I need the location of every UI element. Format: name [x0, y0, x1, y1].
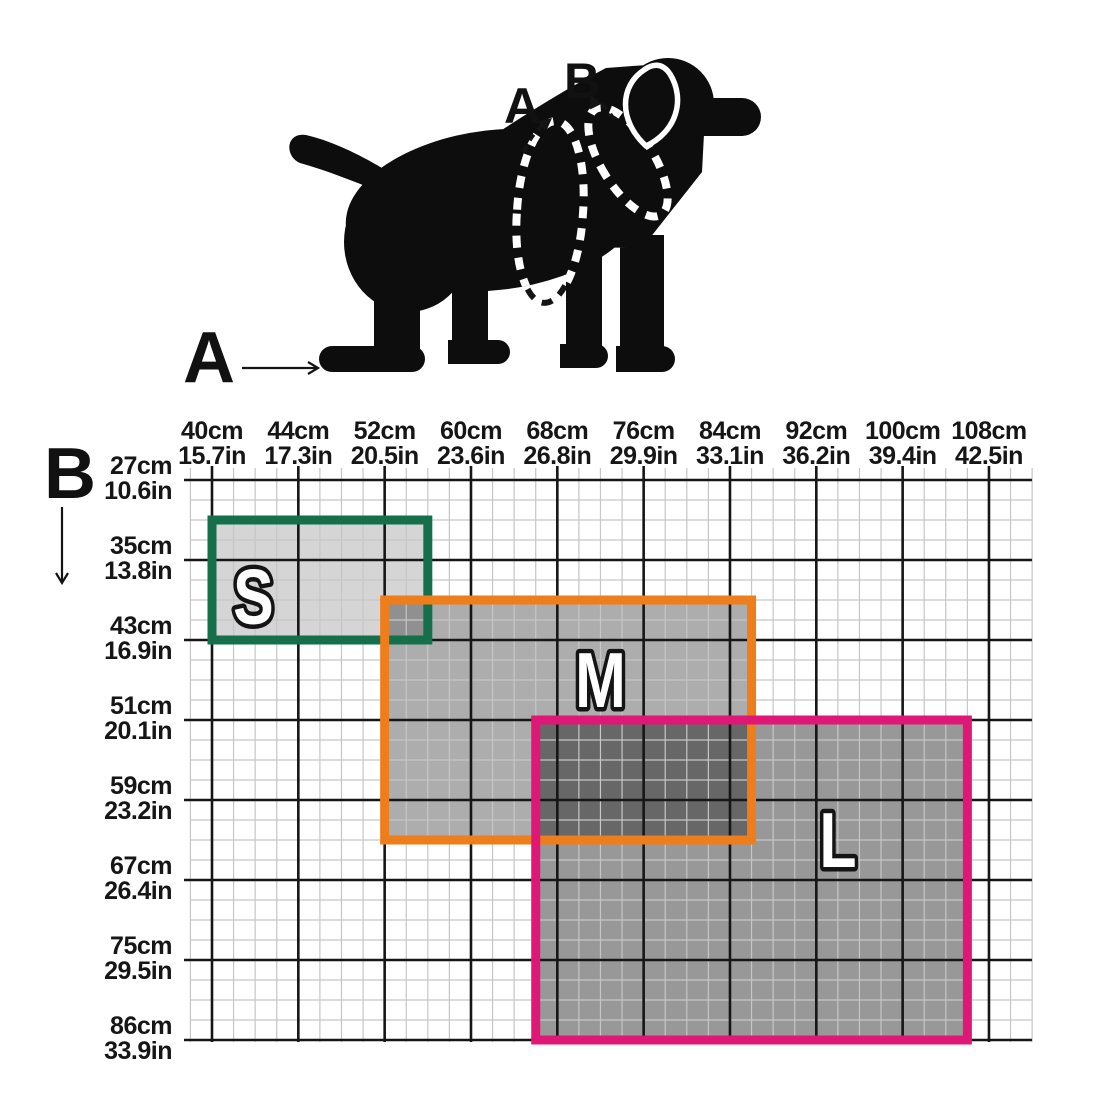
y-tick-in-label: 20.1in	[104, 717, 172, 745]
zone-label-S: S	[233, 553, 274, 640]
x-tick-in-label: 23.6in	[437, 442, 505, 470]
y-tick-cm-label: 35cm	[110, 532, 172, 560]
y-tick-cm-label: 75cm	[110, 932, 172, 960]
y-tick-cm-label: 59cm	[110, 772, 172, 800]
x-tick-cm-label: 40cm	[181, 417, 243, 445]
size-grid-chart: SML40cm15.7in44cm17.3in52cm20.5in60cm23.…	[0, 0, 1100, 1100]
x-tick-cm-label: 108cm	[951, 417, 1026, 445]
y-tick-in-label: 13.8in	[104, 557, 172, 585]
y-tick-in-label: 29.5in	[104, 957, 172, 985]
x-tick-in-label: 17.3in	[264, 442, 332, 470]
y-tick-cm-label: 86cm	[110, 1012, 172, 1040]
x-tick-in-label: 26.8in	[523, 442, 591, 470]
x-tick-in-label: 29.9in	[610, 442, 678, 470]
zone-label-L: L	[819, 797, 856, 884]
x-tick-cm-label: 100cm	[865, 417, 940, 445]
y-tick-cm-label: 51cm	[110, 692, 172, 720]
y-tick-in-label: 16.9in	[104, 637, 172, 665]
x-tick-in-label: 36.2in	[782, 442, 850, 470]
x-tick-cm-label: 76cm	[613, 417, 675, 445]
y-tick-in-label: 26.4in	[104, 877, 172, 905]
x-tick-in-label: 15.7in	[178, 442, 246, 470]
x-tick-in-label: 20.5in	[351, 442, 419, 470]
zone-label-M: M	[575, 637, 626, 724]
y-tick-cm-label: 27cm	[110, 452, 172, 480]
y-tick-in-label: 33.9in	[104, 1037, 172, 1065]
y-tick-cm-label: 43cm	[110, 612, 172, 640]
x-tick-cm-label: 52cm	[354, 417, 416, 445]
harness-size-chart-figure: A B A B SML40cm15.7in44cm17.3in52cm20.5i…	[0, 0, 1100, 1100]
y-tick-in-label: 23.2in	[104, 797, 172, 825]
x-tick-cm-label: 92cm	[785, 417, 847, 445]
y-tick-in-label: 10.6in	[104, 477, 172, 505]
x-tick-cm-label: 60cm	[440, 417, 502, 445]
x-tick-cm-label: 44cm	[267, 417, 329, 445]
x-tick-cm-label: 68cm	[526, 417, 588, 445]
x-tick-in-label: 42.5in	[955, 442, 1023, 470]
y-tick-cm-label: 67cm	[110, 852, 172, 880]
x-tick-in-label: 39.4in	[869, 442, 937, 470]
x-tick-in-label: 33.1in	[696, 442, 764, 470]
x-tick-cm-label: 84cm	[699, 417, 761, 445]
